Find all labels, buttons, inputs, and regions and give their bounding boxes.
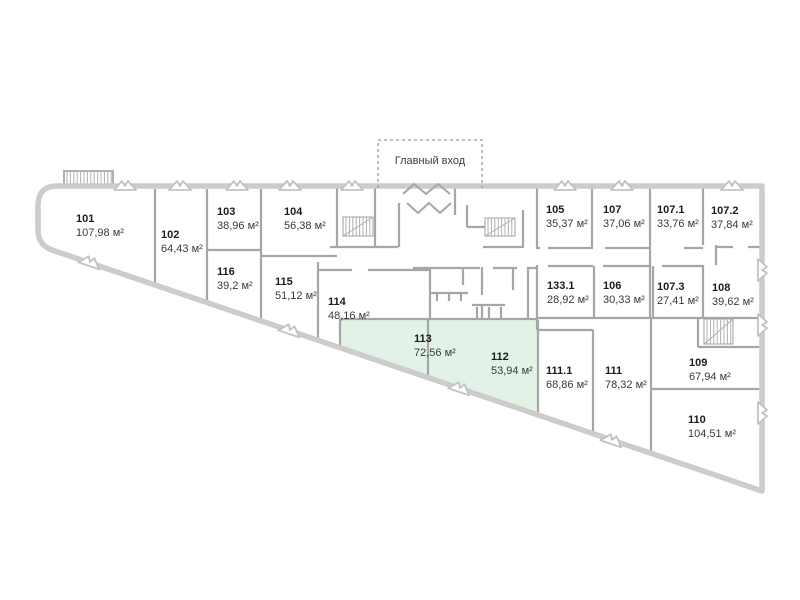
wall-break-icon [114, 181, 136, 190]
room-106-number: 106 [603, 280, 621, 292]
room-112-area: 53,94 м² [491, 365, 533, 377]
wall-break-icon [226, 181, 248, 190]
room-116-area: 39,2 м² [217, 280, 253, 292]
wall-break-icon [554, 181, 576, 190]
room-113-area: 72,56 м² [414, 347, 456, 359]
room-101-area: 107,98 м² [76, 227, 124, 239]
floor-plan-canvas: Главный вход 101107,98 м²10264,43 м²1033… [0, 0, 800, 600]
room-108-number: 108 [712, 282, 730, 294]
room-107-area: 37,06 м² [603, 218, 645, 230]
room-111.1-number: 111.1 [546, 365, 572, 377]
wall-break-icon [279, 181, 301, 190]
room-113-number: 113 [414, 333, 432, 345]
room-107.2-area: 37,84 м² [711, 219, 753, 231]
room-101-number: 101 [76, 213, 94, 225]
room-106-area: 30,33 м² [603, 294, 645, 306]
room-103-area: 38,96 м² [217, 220, 259, 232]
room-115-area: 51,12 м² [275, 290, 317, 302]
room-110[interactable] [651, 389, 762, 491]
room-133.1-area: 28,92 м² [547, 294, 589, 306]
wall-break-icon [758, 402, 767, 424]
room-107.2-number: 107.2 [711, 205, 739, 217]
room-133.1-number: 133.1 [547, 280, 575, 292]
wall-break-icon [611, 181, 633, 190]
room-110-area: 104,51 м² [688, 428, 736, 440]
wall-break-icon [758, 314, 767, 336]
room-102-area: 64,43 м² [161, 243, 203, 255]
room-133.1[interactable] [538, 266, 594, 318]
room-105-area: 35,37 м² [546, 218, 588, 230]
room-116-number: 116 [217, 266, 235, 278]
room-106[interactable] [594, 266, 653, 318]
wall-break-icon [758, 259, 767, 281]
room-102-number: 102 [161, 229, 179, 241]
room-111-area: 78,32 м² [605, 379, 647, 391]
room-107.3-number: 107.3 [657, 281, 685, 293]
room-115-number: 115 [275, 276, 293, 288]
room-109-number: 109 [689, 357, 707, 369]
room-107.1-area: 33,76 м² [657, 218, 699, 230]
room-104-number: 104 [284, 206, 303, 218]
room-109-area: 67,94 м² [689, 371, 731, 383]
room-114-area: 48,16 м² [328, 310, 370, 322]
room-107.2[interactable] [703, 189, 762, 245]
room-108-area: 39,62 м² [712, 296, 754, 308]
room-111-number: 111 [605, 365, 622, 377]
room-107.3-area: 27,41 м² [657, 295, 699, 307]
room-105-number: 105 [546, 204, 564, 216]
wall-break-icon [341, 181, 363, 190]
floor-plan: Главный вход 101107,98 м²10264,43 м²1033… [0, 0, 800, 600]
room-104-area: 56,38 м² [284, 220, 326, 232]
room-107.1-number: 107.1 [657, 204, 685, 216]
room-114-number: 114 [328, 296, 347, 308]
room-107-number: 107 [603, 204, 621, 216]
main-entrance-label: Главный вход [395, 155, 466, 167]
wall-break-icon [721, 181, 743, 190]
wall-break-icon [169, 181, 191, 190]
room-110-number: 110 [688, 414, 706, 426]
room-111.1-area: 68,86 м² [546, 379, 588, 391]
room-103-number: 103 [217, 206, 235, 218]
room-112-number: 112 [491, 351, 509, 363]
